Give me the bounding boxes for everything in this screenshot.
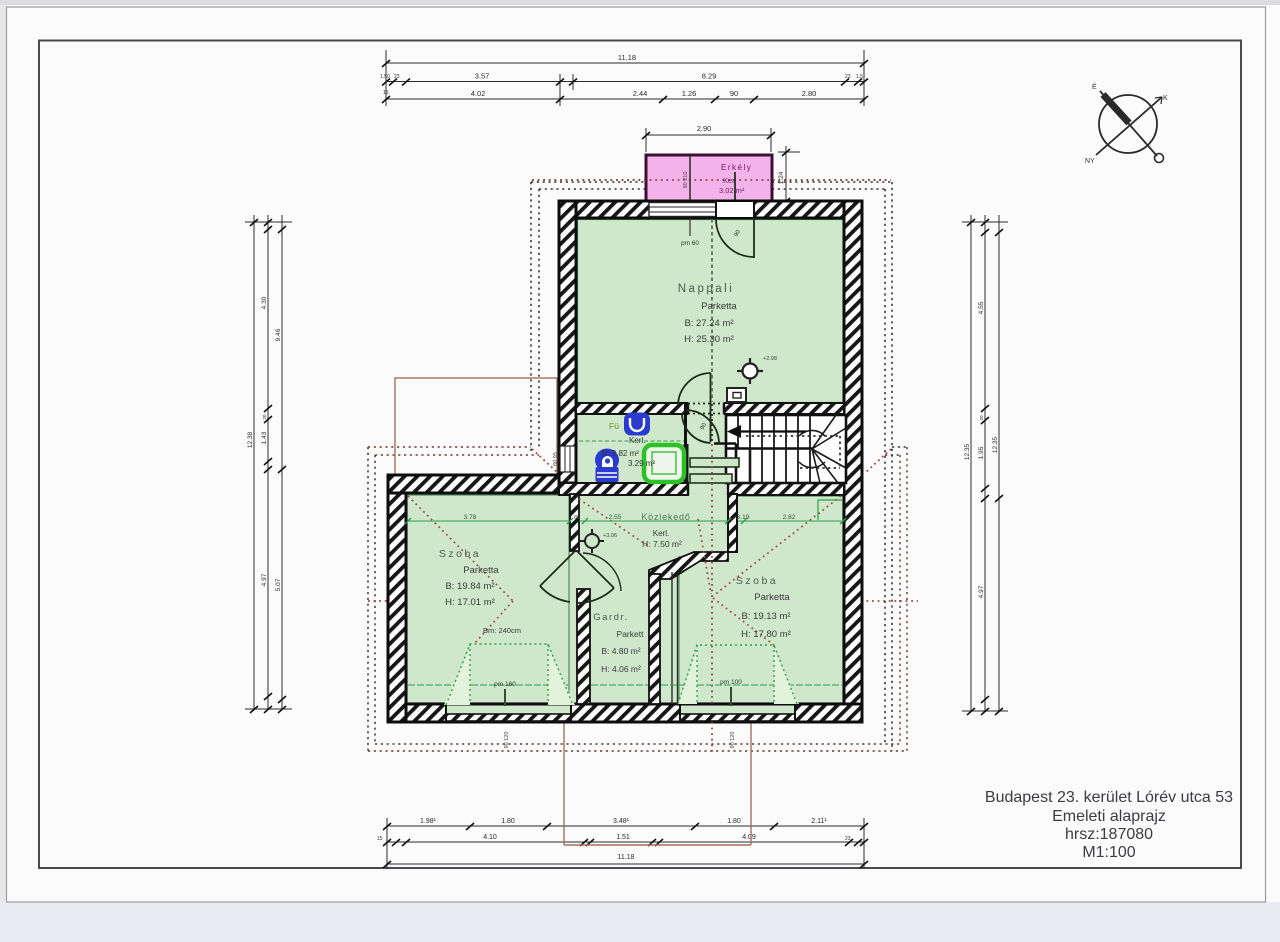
svg-text:60 95: 60 95 <box>553 452 559 466</box>
svg-text:Emeleti alaprajz: Emeleti alaprajz <box>1052 808 1166 825</box>
svg-text:3.57: 3.57 <box>475 72 490 81</box>
svg-text:4.10: 4.10 <box>483 834 497 841</box>
svg-text:Bm: 240cm: Bm: 240cm <box>483 626 521 635</box>
svg-text:12.35: 12.35 <box>992 436 999 453</box>
svg-text:H: 25.30 m²: H: 25.30 m² <box>684 334 734 345</box>
svg-text:11.18: 11.18 <box>618 53 636 62</box>
svg-text:1.98¹: 1.98¹ <box>420 818 437 825</box>
svg-text:4.30: 4.30 <box>261 296 268 309</box>
svg-text:Parkett: Parkett <box>617 629 645 639</box>
svg-text:Kerl.: Kerl. <box>653 529 669 538</box>
svg-text:Nappali: Nappali <box>678 283 735 295</box>
svg-text:3.02 m²: 3.02 m² <box>719 186 745 195</box>
svg-text:2.82: 2.82 <box>783 514 796 521</box>
svg-text:3.78: 3.78 <box>464 514 477 521</box>
svg-text:+2.98: +2.98 <box>763 356 777 362</box>
svg-text:4.97: 4.97 <box>978 585 985 598</box>
svg-text:15: 15 <box>383 90 389 96</box>
svg-text:1.80: 1.80 <box>501 818 515 825</box>
svg-text:B: 19.13 m²: B: 19.13 m² <box>741 611 790 622</box>
svg-text:4.55: 4.55 <box>978 301 985 314</box>
svg-text:11.18: 11.18 <box>618 854 635 861</box>
svg-text:H: 17.80 m²: H: 17.80 m² <box>741 629 791 640</box>
svg-text:1.80: 1.80 <box>727 818 741 825</box>
svg-text:4.97: 4.97 <box>261 573 268 586</box>
svg-text:23: 23 <box>394 74 400 80</box>
svg-text:2.80: 2.80 <box>802 89 817 98</box>
svg-text:2.44: 2.44 <box>633 89 648 98</box>
svg-text:B: 19.84 m²: B: 19.84 m² <box>445 581 494 592</box>
svg-text:pm 100: pm 100 <box>720 679 742 686</box>
svg-text:1.51: 1.51 <box>616 834 630 841</box>
svg-text:9.46: 9.46 <box>275 328 282 341</box>
svg-text:B: 3.82 m²: B: 3.82 m² <box>602 449 639 458</box>
svg-text:2.11¹: 2.11¹ <box>811 818 827 825</box>
svg-text:pm 60: pm 60 <box>681 240 699 247</box>
svg-text:20: 20 <box>262 414 267 420</box>
svg-text:pm 160: pm 160 <box>494 681 516 688</box>
svg-text:2.90: 2.90 <box>697 124 712 133</box>
svg-text:1.43: 1.43 <box>261 431 268 444</box>
svg-text:É: É <box>1092 82 1097 91</box>
svg-text:8.29: 8.29 <box>702 72 717 81</box>
svg-text:H: 7.50 m²: H: 7.50 m² <box>642 539 682 549</box>
svg-text:1.50: 1.50 <box>380 74 390 80</box>
svg-text:M1:100: M1:100 <box>1082 844 1135 861</box>
svg-text:2.55: 2.55 <box>609 514 622 521</box>
svg-text:90 210: 90 210 <box>683 172 689 189</box>
svg-text:15: 15 <box>377 836 383 842</box>
svg-text:23: 23 <box>845 836 851 842</box>
svg-text:12.38: 12.38 <box>247 431 254 448</box>
svg-text:Szoba: Szoba <box>736 575 778 587</box>
svg-text:Parketta: Parketta <box>701 301 737 312</box>
svg-text:Gardr.: Gardr. <box>593 612 628 623</box>
svg-text:Erkély: Erkély <box>721 163 752 172</box>
svg-text:hrsz:187080: hrsz:187080 <box>1065 826 1153 843</box>
svg-text:23: 23 <box>845 74 851 80</box>
svg-text:Budapest 23. kerület Lórév utc: Budapest 23. kerület Lórév utca 53 <box>985 789 1233 806</box>
svg-text:K: K <box>1163 95 1168 102</box>
svg-text:85: 85 <box>574 515 580 521</box>
svg-text:1.5: 1.5 <box>856 74 863 80</box>
svg-text:Szoba: Szoba <box>439 548 481 560</box>
svg-text:90 120: 90 120 <box>730 732 736 749</box>
svg-text:H: 17.01 m²: H: 17.01 m² <box>445 597 495 608</box>
svg-text:B: 27.24 m²: B: 27.24 m² <box>684 318 733 329</box>
svg-text:3.19: 3.19 <box>737 514 750 521</box>
svg-text:B: 4.80 m²: B: 4.80 m² <box>601 646 640 656</box>
svg-text:Parketta: Parketta <box>463 565 499 576</box>
svg-text:1.95: 1.95 <box>978 446 985 459</box>
svg-text:NY: NY <box>1085 158 1095 165</box>
svg-text:3.29 m²: 3.29 m² <box>628 459 655 468</box>
svg-text:90 120: 90 120 <box>504 732 510 749</box>
svg-text:12.35: 12.35 <box>964 443 971 460</box>
svg-text:20: 20 <box>979 415 984 421</box>
svg-text:3.48¹: 3.48¹ <box>613 818 630 825</box>
svg-text:Parketta: Parketta <box>754 592 790 603</box>
svg-text:90: 90 <box>730 89 738 98</box>
svg-text:Fü: Fü <box>609 421 619 431</box>
svg-text:4.09: 4.09 <box>742 834 756 841</box>
svg-text:5.07: 5.07 <box>275 578 282 591</box>
svg-text:4.02: 4.02 <box>471 89 486 98</box>
svg-text:1.26: 1.26 <box>682 89 697 98</box>
svg-text:H: 4.06 m²: H: 4.06 m² <box>601 664 641 674</box>
svg-text:+3.06: +3.06 <box>603 533 617 539</box>
